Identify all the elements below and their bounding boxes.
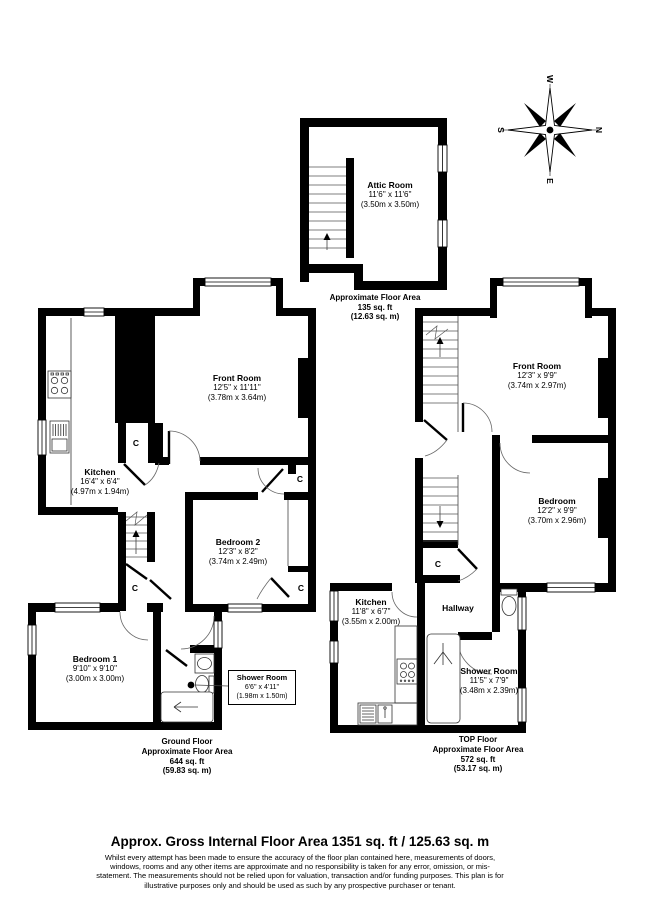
- room-label-gf-bedroom2: Bedroom 2 12'3" x 8'2" (3.74m x 2.49m): [209, 537, 267, 567]
- room-label-gf-shower-room: Shower Room 6'6'' x 4'11'' (1.98m x 1.50…: [228, 670, 296, 705]
- gf-sink-icon: [50, 421, 69, 453]
- disclaimer-text: Whilst every attempt has been made to en…: [95, 853, 505, 890]
- room-label-gf-front-room: Front Room 12'5'' x 11'11'' (3.78m x 3.6…: [208, 373, 266, 403]
- tf-washing-machine-icon: [360, 705, 376, 723]
- ground-floor-stairs: [126, 512, 147, 557]
- attic-stairs: [309, 158, 354, 258]
- room-label-gf-kitchen: Kitchen 16'4" x 6'4" (4.97m x 1.94m): [71, 467, 129, 497]
- room-label-tf-kitchen: Kitchen 11'8" x 6'7" (3.55m x 2.00m): [342, 597, 400, 627]
- gross-internal-area-title: Approx. Gross Internal Floor Area 1351 s…: [95, 834, 505, 849]
- gf-shower-tray-icon: [161, 692, 213, 722]
- gf-toilet-icon: [188, 676, 214, 694]
- cupboard-label: C: [435, 559, 441, 569]
- room-label-tf-front-room: Front Room 12'3" x 9'9" (3.74m x 2.97m): [508, 361, 566, 391]
- room-label-tf-shower-room: Shower Room 11'5" x 7'9" (3.48m x 2.39m): [460, 666, 518, 696]
- cupboard-label: C: [133, 438, 139, 448]
- compass-west-label: W: [545, 75, 555, 84]
- gf-basin-icon: [195, 654, 214, 673]
- top-floor-stairs: [423, 316, 458, 545]
- top-floor-area-label: TOP Floor Approximate Floor Area 572 sq.…: [433, 735, 524, 774]
- tf-toilet-icon: [501, 589, 517, 616]
- room-label-tf-bedroom: Bedroom 12'2" x 9'9" (3.70m x 2.96m): [528, 496, 586, 526]
- tf-stove-icon: [397, 659, 417, 684]
- tf-shower-tray-icon: [427, 634, 460, 723]
- ground-floor-area-label: Ground Floor Approximate Floor Area 644 …: [142, 737, 233, 776]
- cupboard-label: C: [132, 583, 138, 593]
- compass-north-label: N: [594, 127, 604, 133]
- compass-east-label: E: [545, 178, 555, 184]
- cupboard-label: C: [298, 583, 304, 593]
- gf-stove-icon: [48, 371, 71, 398]
- tf-sink-icon: [378, 705, 392, 723]
- floorplan-page: W N E S: [0, 0, 650, 919]
- compass-south-label: S: [496, 127, 506, 133]
- room-label-attic-room: Attic Room 11'6'' x 11'6'' (3.50m x 3.50…: [361, 180, 419, 210]
- floorplan-drawing: W N E S: [0, 0, 650, 919]
- room-label-tf-hallway: Hallway: [442, 603, 474, 613]
- compass-rose-icon: W N E S: [496, 75, 604, 184]
- cupboard-label: C: [297, 474, 303, 484]
- room-label-gf-bedroom1: Bedroom 1 9'10'' x 9'10'' (3.00m x 3.00m…: [66, 654, 124, 684]
- attic-area-label: Attic Approximate Floor Area 135 sq. ft …: [330, 283, 421, 322]
